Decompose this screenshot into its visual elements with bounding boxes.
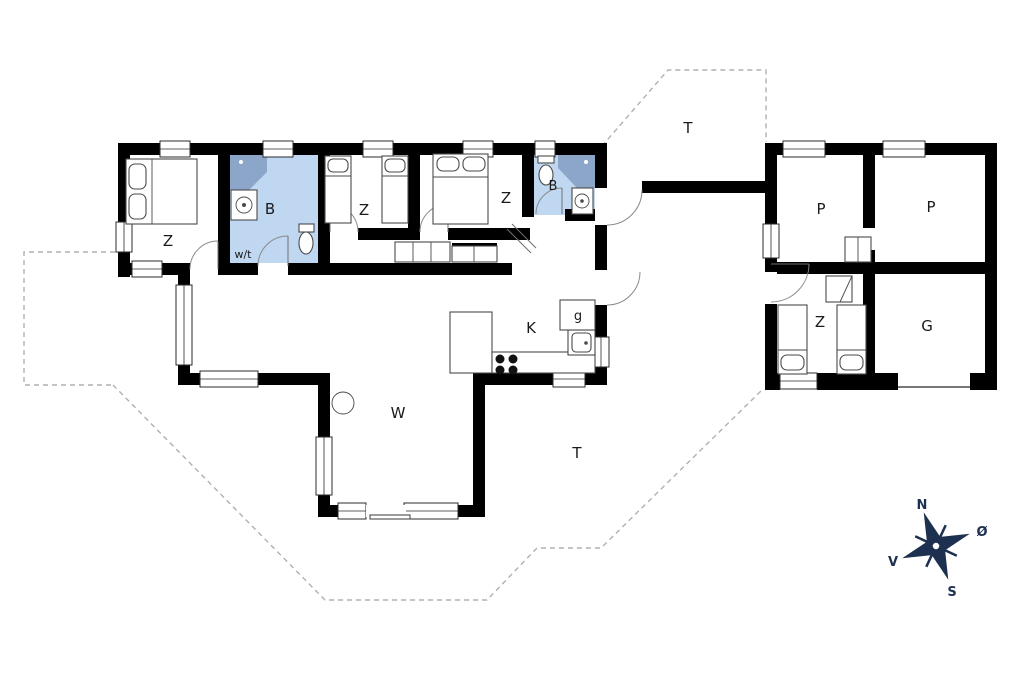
label-living: W bbox=[391, 404, 406, 422]
label-kitchen: K bbox=[526, 319, 537, 337]
shower2-head-icon bbox=[584, 160, 588, 164]
bed-z1 bbox=[126, 159, 197, 224]
compass-s: S bbox=[947, 585, 956, 600]
label-bath2: B bbox=[549, 179, 558, 194]
terrace-door bbox=[366, 505, 410, 519]
label-garage: G bbox=[921, 317, 933, 335]
label-pantry: g bbox=[574, 309, 582, 324]
toilet1-icon bbox=[299, 224, 314, 254]
compass-n: N bbox=[917, 498, 928, 513]
terrace-bottom-boundary bbox=[113, 385, 763, 600]
label-terrace-top: T bbox=[682, 119, 693, 137]
basin2-icon bbox=[572, 188, 593, 214]
shower1-head-icon bbox=[239, 160, 243, 164]
compass-e: Ø bbox=[976, 525, 987, 540]
label-annex-p2: P bbox=[926, 198, 935, 216]
wood-stove-icon bbox=[332, 392, 354, 414]
label-bedroom3: Z bbox=[501, 189, 511, 207]
floor-plan-page: Z B w/t Z Z B K g W T T P P Z G N Ø S V bbox=[0, 0, 1024, 682]
label-bedroom2: Z bbox=[359, 201, 369, 219]
label-terrace-bottom: T bbox=[571, 444, 582, 462]
label-annex-p1: P bbox=[816, 200, 825, 218]
label-bath1: B bbox=[265, 200, 275, 218]
washer-icon bbox=[231, 190, 257, 220]
label-annex-bedroom: Z bbox=[815, 313, 825, 331]
bed-z3 bbox=[433, 154, 488, 224]
compass-hub bbox=[932, 542, 941, 551]
label-washtech: w/t bbox=[234, 248, 252, 261]
compass-rose: N Ø S V bbox=[888, 498, 988, 600]
floor-plan-canvas: Z B w/t Z Z B K g W T T P P Z G N Ø S V bbox=[0, 0, 1024, 682]
terrace-left-boundary bbox=[24, 252, 115, 385]
label-bedroom1: Z bbox=[163, 232, 173, 250]
compass-v: V bbox=[888, 555, 898, 570]
